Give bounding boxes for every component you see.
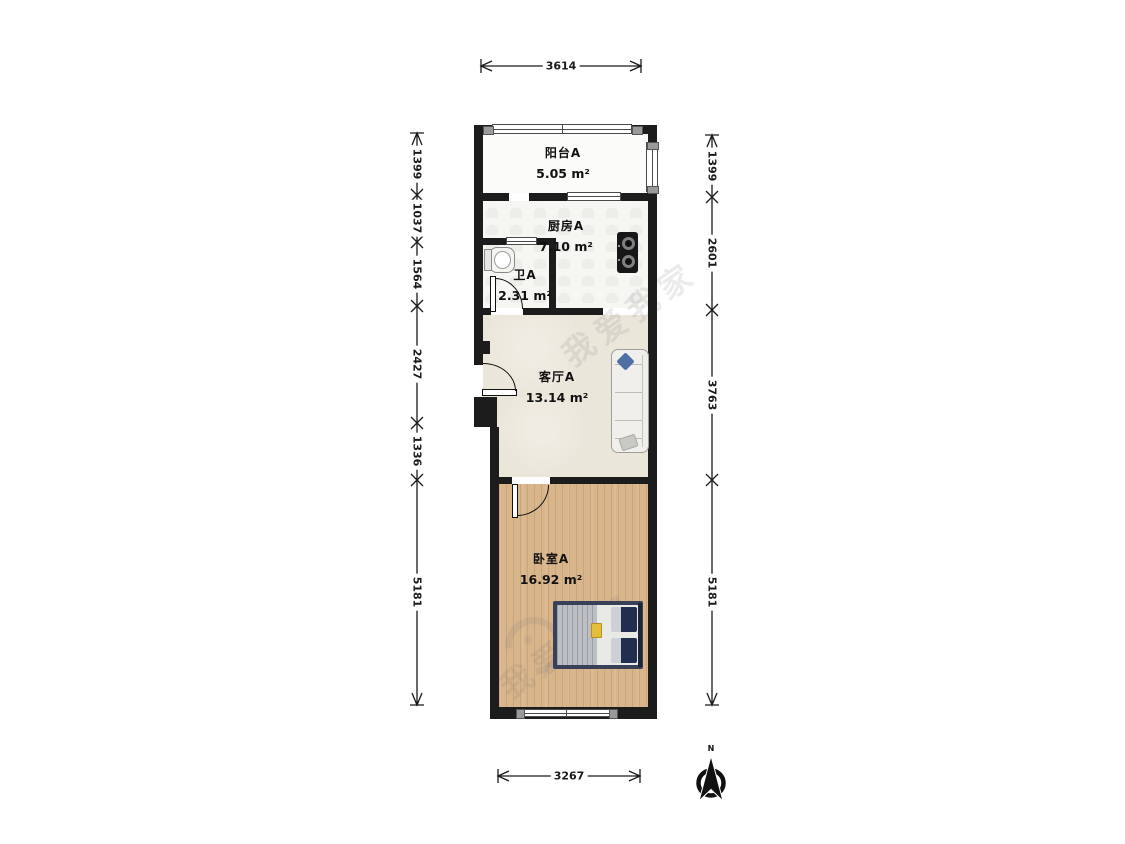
dim-bottom-total: 3267 xyxy=(551,770,588,783)
dim-left-segment: 1336 xyxy=(411,433,424,470)
dim-left-segment: 1399 xyxy=(411,146,424,183)
dim-right-segment: 2601 xyxy=(706,235,719,272)
north-label: N xyxy=(708,744,715,753)
dim-left-segment: 2427 xyxy=(411,346,424,383)
north-arrow-icon xyxy=(699,756,724,801)
dim-left-segment: 1564 xyxy=(411,256,424,293)
dim-left-segment: 5181 xyxy=(411,574,424,611)
dim-right-segment: 5181 xyxy=(706,574,719,611)
dimension-lines xyxy=(0,0,1125,844)
floorplan-canvas: 我爱我家 我爱我家 xyxy=(0,0,1125,844)
dim-right-segment: 3763 xyxy=(706,377,719,414)
dim-left-segment: 1037 xyxy=(411,200,424,237)
dim-right-segment: 1399 xyxy=(706,148,719,185)
right-dimension-line xyxy=(705,135,719,705)
dim-top-total: 3614 xyxy=(543,60,580,73)
